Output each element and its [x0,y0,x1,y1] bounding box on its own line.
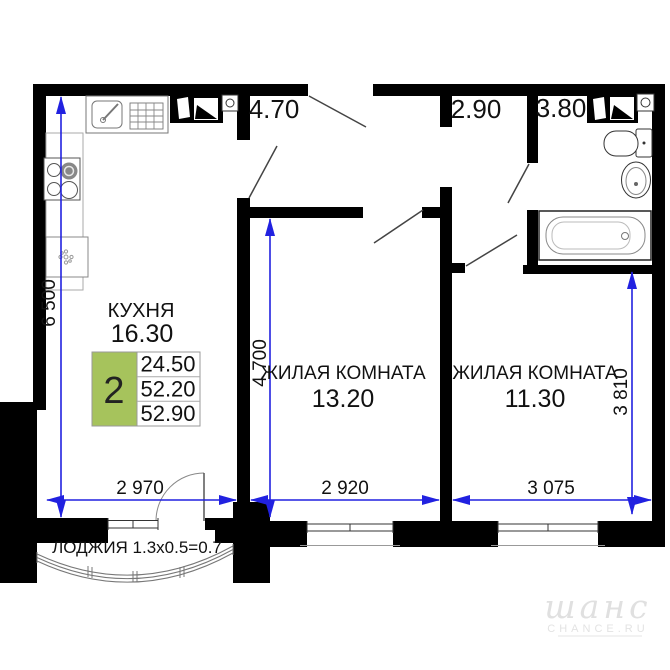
hallway-area: 4.70 [249,94,300,124]
summary-table: 2 24.50 52.20 52.90 [92,352,200,427]
wall-loggia-divider [233,502,270,583]
room1-label: ЖИЛАЯ КОМНАТА [260,363,426,384]
room2-area: 11.30 [505,385,566,413]
watermark-script: шанс [544,587,651,626]
wall-bottom-room2-right [598,521,665,547]
kitchen-vent-duct-a [177,97,190,119]
kitchen-label: КУХНЯ [108,300,175,322]
room1-area: 13.20 [312,385,375,413]
wall-left-lower-block [0,402,37,583]
wall-left [33,84,46,410]
kitchen-vent-hole-icon [226,99,234,107]
kitchen-drainer-grid-icon [130,103,163,129]
fridge-icon [46,237,88,277]
bath-vent-hole-icon [641,98,650,107]
floor-plan-image: 6 500 4 700 3 810 2 970 2 920 3 075 КУХН… [0,0,670,670]
bath-vent-duct-a [593,97,606,120]
bathtub-icon [539,211,651,260]
wall-hall-room1 [250,207,363,218]
dim-kitchen-width: 2 970 [116,478,164,499]
toilet-icon [604,129,652,157]
wall-kitchen-right [237,198,250,521]
wall-bath-left-bottom [527,210,538,265]
table-living-area: 24.50 [140,352,195,377]
kitchen-area: 16.30 [111,320,174,348]
wall-bath-bottom [523,265,665,274]
loggia-label: ЛОДЖИЯ 1.3x0.5=0.7 [52,538,222,557]
bathroom-area: 3.80 [536,93,587,123]
watermark-caption: CHANCE.RU [547,623,648,635]
wall-bottom-between-windows [393,521,498,547]
dim-room1-width: 2 920 [321,478,369,499]
wall-right [652,84,665,547]
table-total-area: 52.90 [140,401,195,426]
room2-label: ЖИЛАЯ КОМНАТА [452,363,618,384]
dim-kitchen-height: 6 500 [39,279,60,327]
dim-room2-width: 3 075 [527,478,575,499]
corridor-area: 2.90 [451,94,502,124]
stove-icon [44,158,80,200]
floor-plan-svg: 6 500 4 700 3 810 2 970 2 920 3 075 КУХН… [0,0,670,670]
wall-balcony-door-jamb [205,518,215,530]
table-room-count: 2 [103,370,124,412]
table-area-no-loggia: 52.20 [140,377,195,402]
wall-room-divider [440,187,452,521]
wall-room2-door-stub [452,263,465,273]
watermark: шанс CHANCE.RU [544,587,651,636]
washbasin-icon [622,162,651,198]
wall-bottom-room1-left [270,521,307,547]
